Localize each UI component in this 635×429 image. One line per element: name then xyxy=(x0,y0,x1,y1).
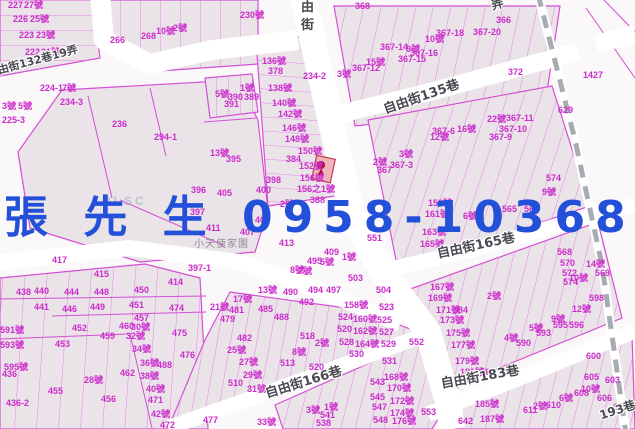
parcel-label: 476 xyxy=(180,351,195,360)
parcel-label: 436 xyxy=(2,370,17,379)
parcel-label: 488 xyxy=(157,361,172,370)
cadastral-map-canvas[interactable]: NLSC 22727號22625號22323號22221號26626810號2號… xyxy=(0,0,635,429)
parcel-label: 148號 xyxy=(285,135,309,144)
parcel-label: 485 xyxy=(258,305,273,314)
parcel-label: 27號 xyxy=(24,1,43,10)
parcel-label: 606 xyxy=(597,394,612,403)
parcel-label: 368 xyxy=(355,2,370,11)
parcel-label: 160號 xyxy=(353,315,377,324)
parcel-label: 5號 xyxy=(18,102,32,111)
parcel-label: 12號 xyxy=(572,305,591,314)
parcel-label: 173號 xyxy=(440,316,464,325)
parcel-label: 528 xyxy=(339,338,354,347)
parcel-label: 504 xyxy=(376,286,391,295)
parcel-label: 268 xyxy=(141,32,156,41)
parcel-label: 175號 xyxy=(446,329,470,338)
parcel-label: 569 xyxy=(595,269,610,278)
parcel-label: 140號 xyxy=(272,99,296,108)
parcel-label: 438 xyxy=(16,288,31,297)
parcel-label: 40號 xyxy=(146,385,165,394)
parcel-label: 629 xyxy=(558,106,573,115)
parcel-label: 227 xyxy=(8,1,23,10)
parcel-label: 523 xyxy=(379,303,394,312)
parcel-label: 389 xyxy=(244,93,259,102)
parcel-label: 611 xyxy=(523,406,538,415)
parcel-label: 2號 xyxy=(173,24,187,33)
parcel-label: 543 xyxy=(370,378,385,387)
parcel-label: 593號 xyxy=(0,341,24,350)
parcel-label: 441 xyxy=(34,303,49,312)
parcel-label: 584 xyxy=(453,306,468,315)
parcel-label: 33號 xyxy=(257,418,276,427)
parcel-label: 451 xyxy=(129,301,144,310)
parcel-label: 234-3 xyxy=(60,98,83,107)
parcel-label: 5號 xyxy=(215,90,229,99)
parcel-label: 518 xyxy=(300,332,315,341)
parcel-label: 605 xyxy=(584,373,599,382)
parcel-label: 482 xyxy=(237,334,252,343)
parcel-label: 459 xyxy=(100,332,115,341)
parcel-label: 172號 xyxy=(390,397,414,406)
parcel-label: 367-14 xyxy=(380,43,408,52)
parcel-label: 530 xyxy=(349,350,364,359)
parcel-label: 10號 xyxy=(569,274,588,283)
parcel-label: 367-11 xyxy=(506,114,534,123)
parcel-label: 177號 xyxy=(451,341,475,350)
parcel-label: 226 xyxy=(13,15,28,24)
parcel-label: 15號 xyxy=(366,58,385,67)
parcel-label: 28號 xyxy=(84,376,103,385)
parcel-label: 8號 xyxy=(292,348,306,357)
parcel-label: 477 xyxy=(203,416,218,425)
parcel-label: 162號 xyxy=(353,327,377,336)
parcel-label: 494 xyxy=(308,286,323,295)
parcel-label: 236 xyxy=(112,120,127,129)
parcel-label: 552 xyxy=(409,338,424,347)
parcel-label: 2號 xyxy=(315,339,329,348)
parcel-label: 472 xyxy=(160,421,175,429)
parcel-label: 230號 xyxy=(240,11,264,20)
parcel-label: 456 xyxy=(101,395,116,404)
parcel-label: 1號 xyxy=(240,84,254,93)
parcel-label: 7號 xyxy=(298,267,312,276)
parcel-label: 409 xyxy=(324,248,339,257)
parcel-label: 23號 xyxy=(36,31,55,40)
parcel-label: 32號 xyxy=(126,332,145,341)
parcel-label: 529 xyxy=(381,340,396,349)
parcel-label: 524 xyxy=(338,313,353,322)
parcel-label: 593 xyxy=(536,329,551,338)
parcel-label: 591號 xyxy=(0,326,24,335)
parcel-label: 455 xyxy=(48,387,63,396)
parcel-label: 440 xyxy=(34,287,49,296)
parcel-label: 3號 xyxy=(337,70,351,79)
parcel-label: 596 xyxy=(569,321,584,330)
parcel-label: 142號 xyxy=(278,110,302,119)
parcel-label: 27號 xyxy=(239,358,258,367)
parcel-label: 372 xyxy=(508,68,523,77)
parcel-label: 1427 xyxy=(583,71,603,80)
parcel-label: 2號 xyxy=(487,292,501,301)
parcel-label: 266 xyxy=(110,36,125,45)
parcel-label: 150號 xyxy=(298,147,322,156)
parcel-label: 527 xyxy=(379,328,394,337)
parcel-label: 570 xyxy=(560,259,575,268)
parcel-label: 553 xyxy=(421,408,436,417)
parcel-label: 25號 xyxy=(30,15,49,24)
parcel-label: 3號 xyxy=(2,102,16,111)
parcel-label: 13號 xyxy=(210,149,229,158)
parcel-label: 10號 xyxy=(425,35,444,44)
parcel-label: 170號 xyxy=(387,384,411,393)
parcel-label: 449 xyxy=(90,303,105,312)
parcel-label: 453 xyxy=(55,340,70,349)
parcel-label: 138號 xyxy=(268,84,292,93)
parcel-label: 22號 xyxy=(487,115,506,124)
contact-overlay: 張 先 生 0958-103680 xyxy=(4,181,635,245)
parcel-label: 608 xyxy=(574,389,589,398)
parcel-label: 185號 xyxy=(475,400,499,409)
parcel-label: 38號 xyxy=(140,372,159,381)
parcel-label: 158號 xyxy=(344,301,368,310)
parcel-label: 590 xyxy=(516,339,531,348)
parcel-label: 29號 xyxy=(243,371,262,380)
parcel-label: 224-1 xyxy=(40,84,63,93)
parcel-label: 513 xyxy=(280,359,295,368)
parcel-label: 538 xyxy=(316,419,331,428)
parcel-label: 436-2 xyxy=(6,399,29,408)
parcel-label: 378 xyxy=(268,67,283,76)
parcel-label: 510 xyxy=(228,379,243,388)
parcel-label: 492 xyxy=(299,298,314,307)
parcel-label: 7號 xyxy=(62,84,76,93)
parcel-label: 167號 xyxy=(430,283,454,292)
parcel-label: 415 xyxy=(94,270,109,279)
parcel-label: 479 xyxy=(220,315,235,324)
parcel-label: 548 xyxy=(373,416,388,425)
parcel-label: 187號 xyxy=(480,415,504,424)
parcel-label: 391 xyxy=(224,100,239,109)
parcel-label: 545 xyxy=(370,393,385,402)
parcel-label: 520 xyxy=(337,325,352,334)
parcel-label: 474 xyxy=(169,304,184,313)
parcel-label: 21號 xyxy=(210,303,229,312)
parcel-label: 568 xyxy=(557,248,572,257)
parcel-label: 34號 xyxy=(132,345,151,354)
parcel-label: 366 xyxy=(496,16,511,25)
parcel-label: 176號 xyxy=(392,417,416,426)
parcel-label: 367-9 xyxy=(489,133,512,142)
parcel-label: 446 xyxy=(62,305,77,314)
parcel-label: 600 xyxy=(586,352,601,361)
parcel-label: 169號 xyxy=(428,294,452,303)
parcel-label: 294-1 xyxy=(154,133,177,142)
parcel-label: 525 xyxy=(377,316,392,325)
parcel-label: 152號 xyxy=(299,162,323,171)
parcel-label: 471 xyxy=(148,396,163,405)
parcel-label: 3號 xyxy=(306,406,320,415)
parcel-label: 610 xyxy=(546,401,561,410)
parcel-label: 234-2 xyxy=(303,72,326,81)
parcel-label: 414 xyxy=(168,278,183,287)
parcel-label: 417 xyxy=(52,256,67,265)
parcel-label: 42號 xyxy=(151,410,170,419)
parcel-label: 223 xyxy=(19,31,34,40)
parcel-label: 444 xyxy=(64,288,79,297)
parcel-label: 462 xyxy=(120,369,135,378)
parcel-label: 503 xyxy=(348,274,363,283)
parcel-label: 1號 xyxy=(342,253,356,262)
parcel-label: 3號 xyxy=(399,150,413,159)
parcel-label: 16號 xyxy=(457,125,476,134)
parcel-label: 448 xyxy=(94,288,109,297)
parcel-label: 164號 xyxy=(355,340,379,349)
parcel-label: 25號 xyxy=(227,346,246,355)
parcel-label: 2號 xyxy=(373,158,387,167)
parcel-label: 168號 xyxy=(384,373,408,382)
parcel-label: 531 xyxy=(382,357,397,366)
parcel-label: 17號 xyxy=(233,295,252,304)
street-name-label: 街 xyxy=(301,19,314,32)
parcel-label: 397-1 xyxy=(188,264,211,273)
parcel-label: 603 xyxy=(605,376,620,385)
parcel-label: 367-20 xyxy=(473,28,501,37)
street-name-label: 自由街166巷 xyxy=(264,365,343,401)
parcel-label: 146號 xyxy=(282,124,306,133)
parcel-label: 13號 xyxy=(258,286,277,295)
street-name-label: 自由街135巷 xyxy=(382,78,461,116)
parcel-label: 452 xyxy=(72,324,87,333)
parcel-label: 450 xyxy=(134,286,149,295)
parcel-label: 497 xyxy=(326,286,341,295)
parcel-label: 490 xyxy=(283,288,298,297)
parcel-label: 598 xyxy=(589,294,604,303)
parcel-label: 642 xyxy=(458,417,473,426)
parcel-label: 5號 xyxy=(320,258,334,267)
parcel-label: 367-15 xyxy=(398,55,426,64)
parcel-label: 595 xyxy=(553,321,568,330)
street-name-label: 弄 xyxy=(490,0,505,12)
parcel-label: 12號 xyxy=(430,133,449,142)
parcel-label: 367-3 xyxy=(390,161,413,170)
parcel-label: 475 xyxy=(172,329,187,338)
parcel-label: 136號 xyxy=(262,57,286,66)
parcel-label: 179號 xyxy=(455,357,479,366)
parcel-label: 225-3 xyxy=(2,116,25,125)
parcel-label: 547 xyxy=(372,403,387,412)
street-name-label: 由 xyxy=(301,1,314,14)
parcel-label: 6號 xyxy=(559,394,573,403)
parcel-label: 488 xyxy=(274,313,289,322)
